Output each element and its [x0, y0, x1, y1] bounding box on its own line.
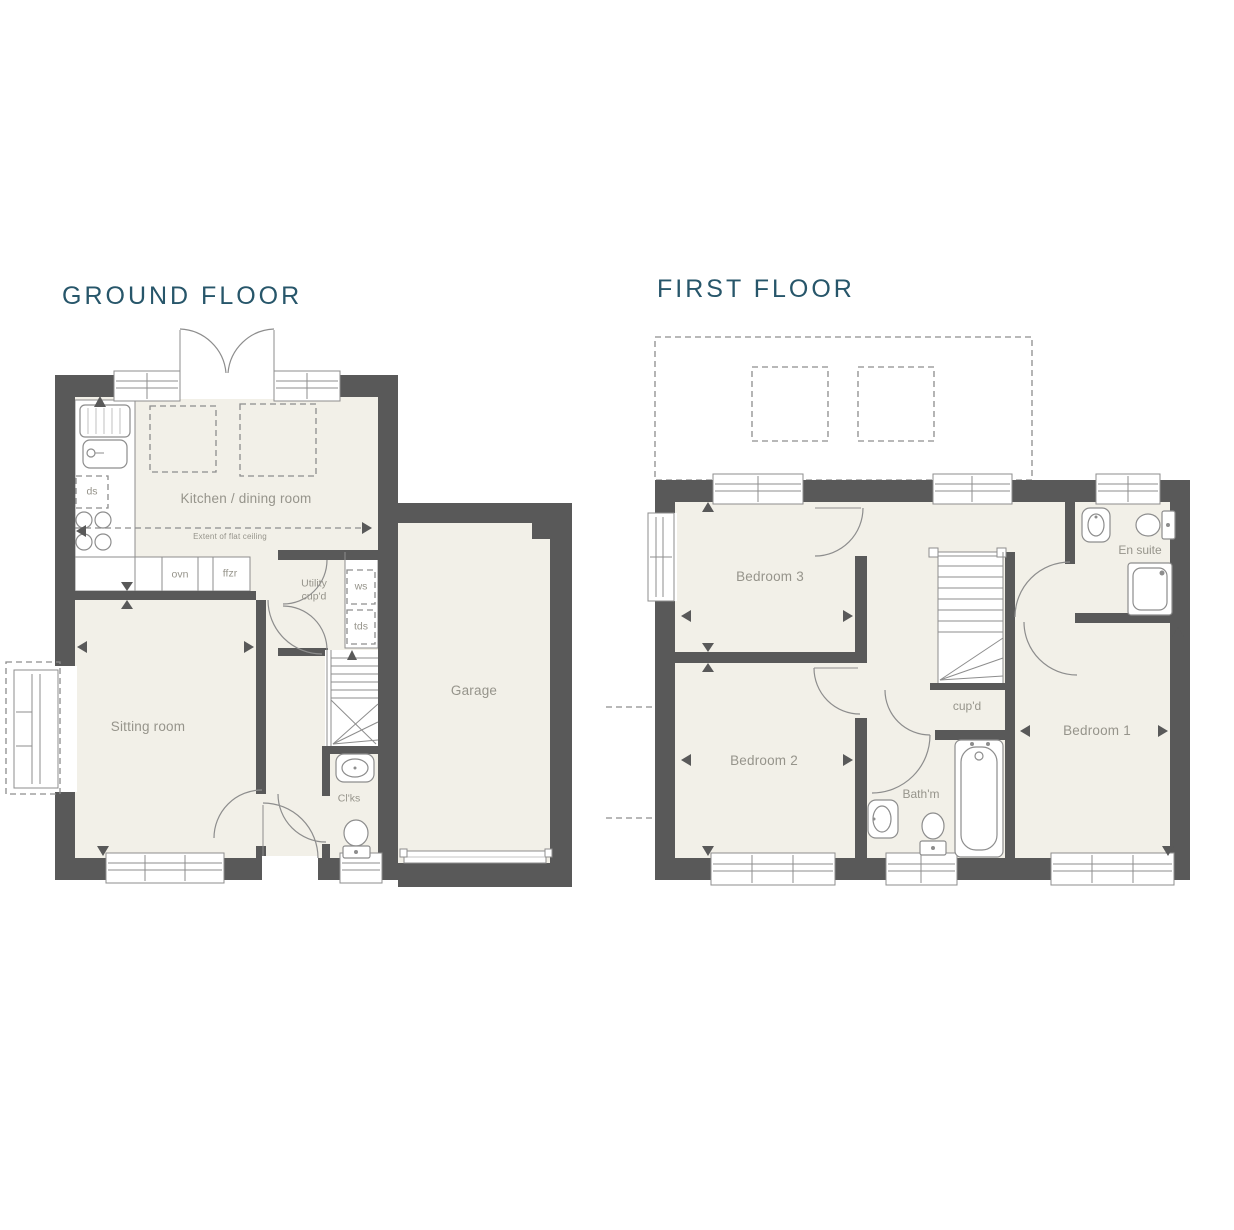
first-floor-plan [606, 337, 1190, 885]
rooflight-left [752, 367, 828, 441]
label-ensuite: En suite [1118, 543, 1161, 557]
label-utility-cupboard: Utility cup'd [301, 577, 327, 602]
bathroom-toilet [920, 813, 946, 855]
kitchen-window-left [114, 371, 180, 401]
ensuite-window [1096, 474, 1160, 504]
label-ceiling-extent: Extent of flat ceiling [193, 532, 267, 542]
bedroom3-side-window [648, 513, 674, 601]
floorplan-canvas: GROUND FLOOR FIRST FLOOR Kitchen / dinin… [0, 0, 1234, 1230]
label-cupboard: cup'd [953, 699, 981, 713]
bedroom2-window [711, 853, 835, 885]
label-cloakroom: Cl'ks [338, 793, 360, 806]
label-dishwasher: ds [86, 486, 97, 499]
french-door-right-arc [228, 329, 274, 373]
bathtub [955, 740, 1003, 857]
bay-window [6, 662, 60, 794]
ground-floor-stairs [325, 650, 378, 746]
label-oven: ovn [172, 569, 189, 582]
ground-floor-title: GROUND FLOOR [62, 282, 302, 311]
label-kitchen-dining: Kitchen / dining room [180, 491, 311, 507]
ground-floor-plan [6, 329, 572, 887]
cloakroom-basin [336, 754, 374, 782]
kitchen-window-right [274, 371, 340, 401]
label-dryer-space: tds [354, 621, 368, 634]
landing-window [933, 474, 1012, 504]
sitting-room-window [106, 853, 224, 883]
label-garage: Garage [451, 683, 497, 699]
garage-door [400, 849, 552, 863]
label-bathroom: Bath'm [903, 787, 940, 801]
ensuite-basin [1082, 508, 1110, 542]
floorplan-drawing [0, 0, 1234, 1230]
label-washer-space: ws [355, 581, 368, 594]
bathroom-basin [868, 800, 898, 838]
bathroom-window [886, 853, 957, 885]
shower [1128, 563, 1172, 615]
label-bedroom1: Bedroom 1 [1063, 723, 1131, 739]
cloakroom-toilet [343, 820, 370, 858]
rooflight-right [858, 367, 934, 441]
bedroom3-window [713, 474, 803, 504]
label-bedroom2: Bedroom 2 [730, 753, 798, 769]
kitchen-sink [80, 405, 130, 468]
first-floor-stairs [929, 548, 1006, 683]
first-floor-rooms [655, 480, 1190, 880]
bedroom1-window [1051, 853, 1174, 885]
french-door-left-arc [180, 329, 226, 373]
label-fridge-freezer: ffzr [223, 568, 237, 581]
first-floor-title: FIRST FLOOR [657, 275, 855, 304]
label-sitting-room: Sitting room [111, 719, 185, 735]
label-bedroom3: Bedroom 3 [736, 569, 804, 585]
